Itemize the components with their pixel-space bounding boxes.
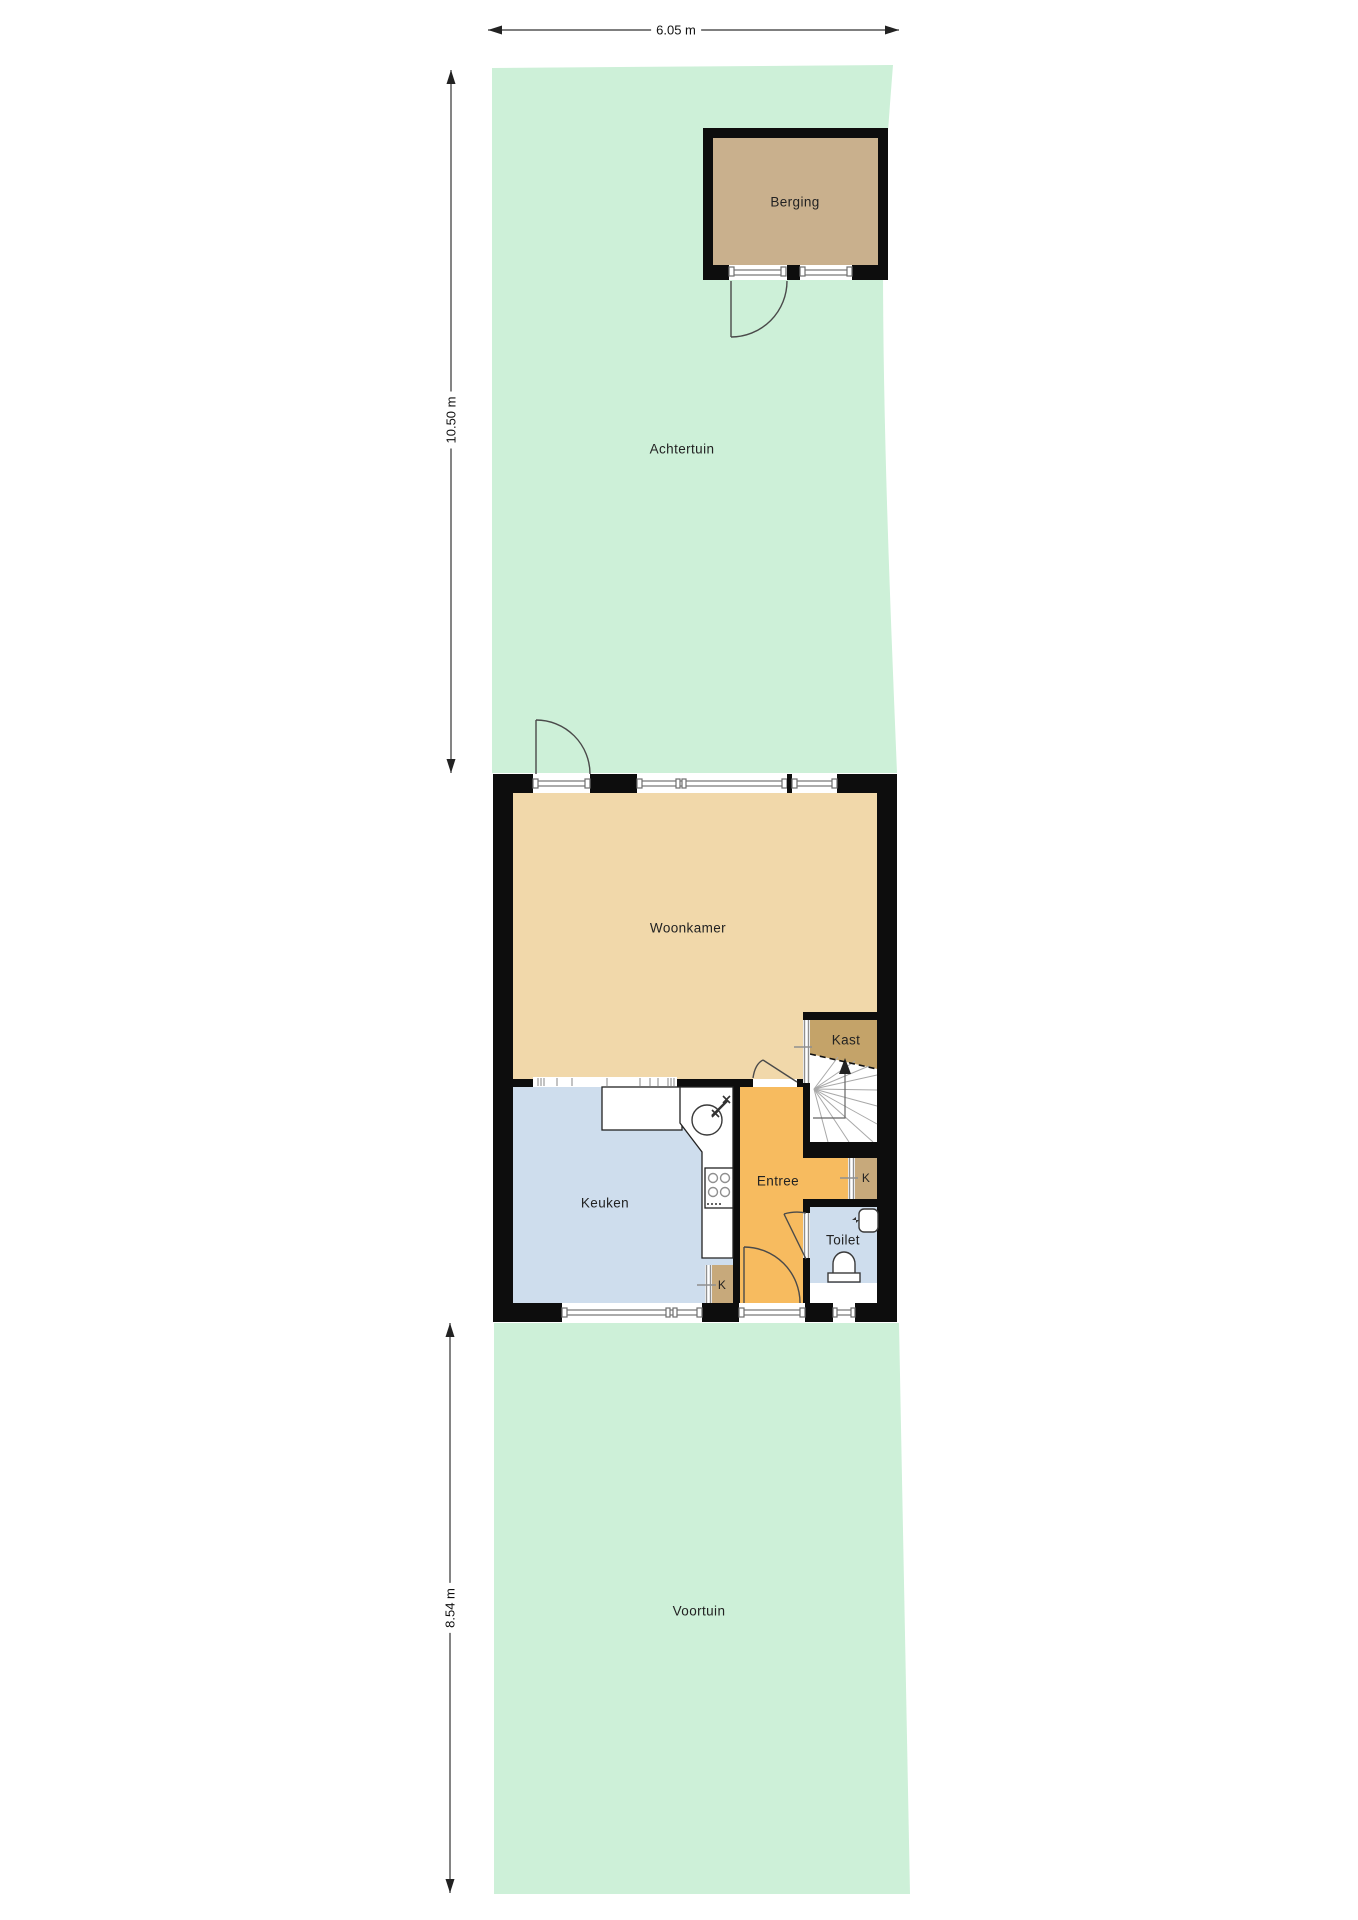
floorplan-drawing — [0, 0, 1358, 1920]
room-label-achtertuin: Achtertuin — [650, 442, 715, 457]
toilet-door-opening — [803, 1213, 810, 1258]
room-label-keuken: Keuken — [581, 1196, 629, 1211]
room-label-woonkamer: Woonkamer — [650, 921, 726, 936]
garden-door-opening — [533, 774, 590, 793]
dimension-label-plot-width: 6.05 m — [651, 23, 701, 38]
room-label-voortuin: Voortuin — [673, 1604, 726, 1619]
cooktop — [705, 1168, 733, 1208]
living-room-window-2 — [792, 774, 837, 793]
meter-label-kitchen: K — [718, 1278, 726, 1292]
room-label-berging: Berging — [770, 195, 819, 210]
dimension-label-front-garden: 8.54 m — [443, 1583, 458, 1633]
front-door-opening — [739, 1303, 805, 1322]
room-label-entree: Entree — [757, 1174, 799, 1189]
living-kitchen-opening — [533, 1077, 677, 1087]
room-label-kast: Kast — [832, 1033, 861, 1048]
corner-sink — [859, 1209, 878, 1232]
floorplan-canvas: Berging Achtertuin Woonkamer Kast Keuken… — [0, 0, 1358, 1920]
dimension-label-back-garden: 10.50 m — [444, 392, 459, 449]
window-divider — [787, 774, 792, 793]
toilet-window — [833, 1303, 855, 1322]
living-room-window-1 — [637, 774, 787, 793]
staircase — [810, 1054, 877, 1142]
meter-label-hall: K — [862, 1171, 870, 1185]
room-label-toilet: Toilet — [826, 1233, 860, 1248]
kitchen-window — [562, 1303, 702, 1322]
